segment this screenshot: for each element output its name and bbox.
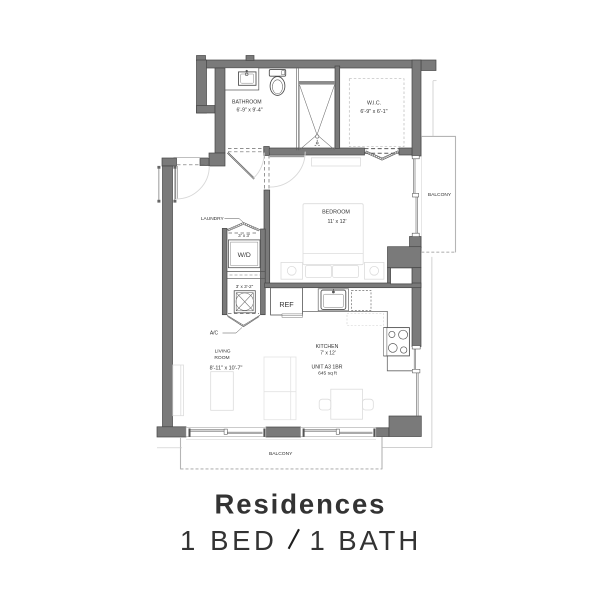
svg-text:8'-11" x 10'-7": 8'-11" x 10'-7" bbox=[210, 365, 243, 371]
svg-text:6'-9" x 9'-4": 6'-9" x 9'-4" bbox=[237, 107, 263, 113]
svg-text:BATHROOM: BATHROOM bbox=[232, 100, 262, 106]
svg-text:LAUNDRY: LAUNDRY bbox=[201, 216, 225, 222]
svg-text:KITCHEN: KITCHEN bbox=[316, 344, 339, 350]
svg-text:Residences: Residences bbox=[215, 489, 387, 520]
svg-text:A/C: A/C bbox=[210, 331, 219, 337]
svg-text:LIVING: LIVING bbox=[215, 349, 231, 355]
svg-text:W.I.C.: W.I.C. bbox=[367, 100, 381, 106]
svg-text:7' x 12': 7' x 12' bbox=[320, 350, 336, 356]
svg-text:BALCONY: BALCONY bbox=[269, 451, 293, 457]
svg-text:ROOM: ROOM bbox=[214, 355, 229, 361]
svg-text:BALCONY: BALCONY bbox=[428, 192, 452, 198]
svg-text:W/D: W/D bbox=[238, 252, 251, 259]
svg-text:1 BED: 1 BED bbox=[180, 525, 277, 556]
svg-text:UNIT A3 1BR: UNIT A3 1BR bbox=[311, 365, 342, 371]
svg-text:6'-9" x 6'-1": 6'-9" x 6'-1" bbox=[360, 109, 387, 115]
svg-text:11' x 12': 11' x 12' bbox=[327, 219, 346, 225]
svg-text:3' x 3': 3' x 3' bbox=[238, 233, 250, 238]
svg-text:BEDROOM: BEDROOM bbox=[322, 210, 350, 216]
svg-text:645 sq ft: 645 sq ft bbox=[318, 370, 337, 376]
svg-text:1 BATH: 1 BATH bbox=[310, 525, 422, 556]
svg-text:REF: REF bbox=[279, 300, 294, 309]
svg-text:3' x 3'-2": 3' x 3'-2" bbox=[236, 284, 254, 289]
